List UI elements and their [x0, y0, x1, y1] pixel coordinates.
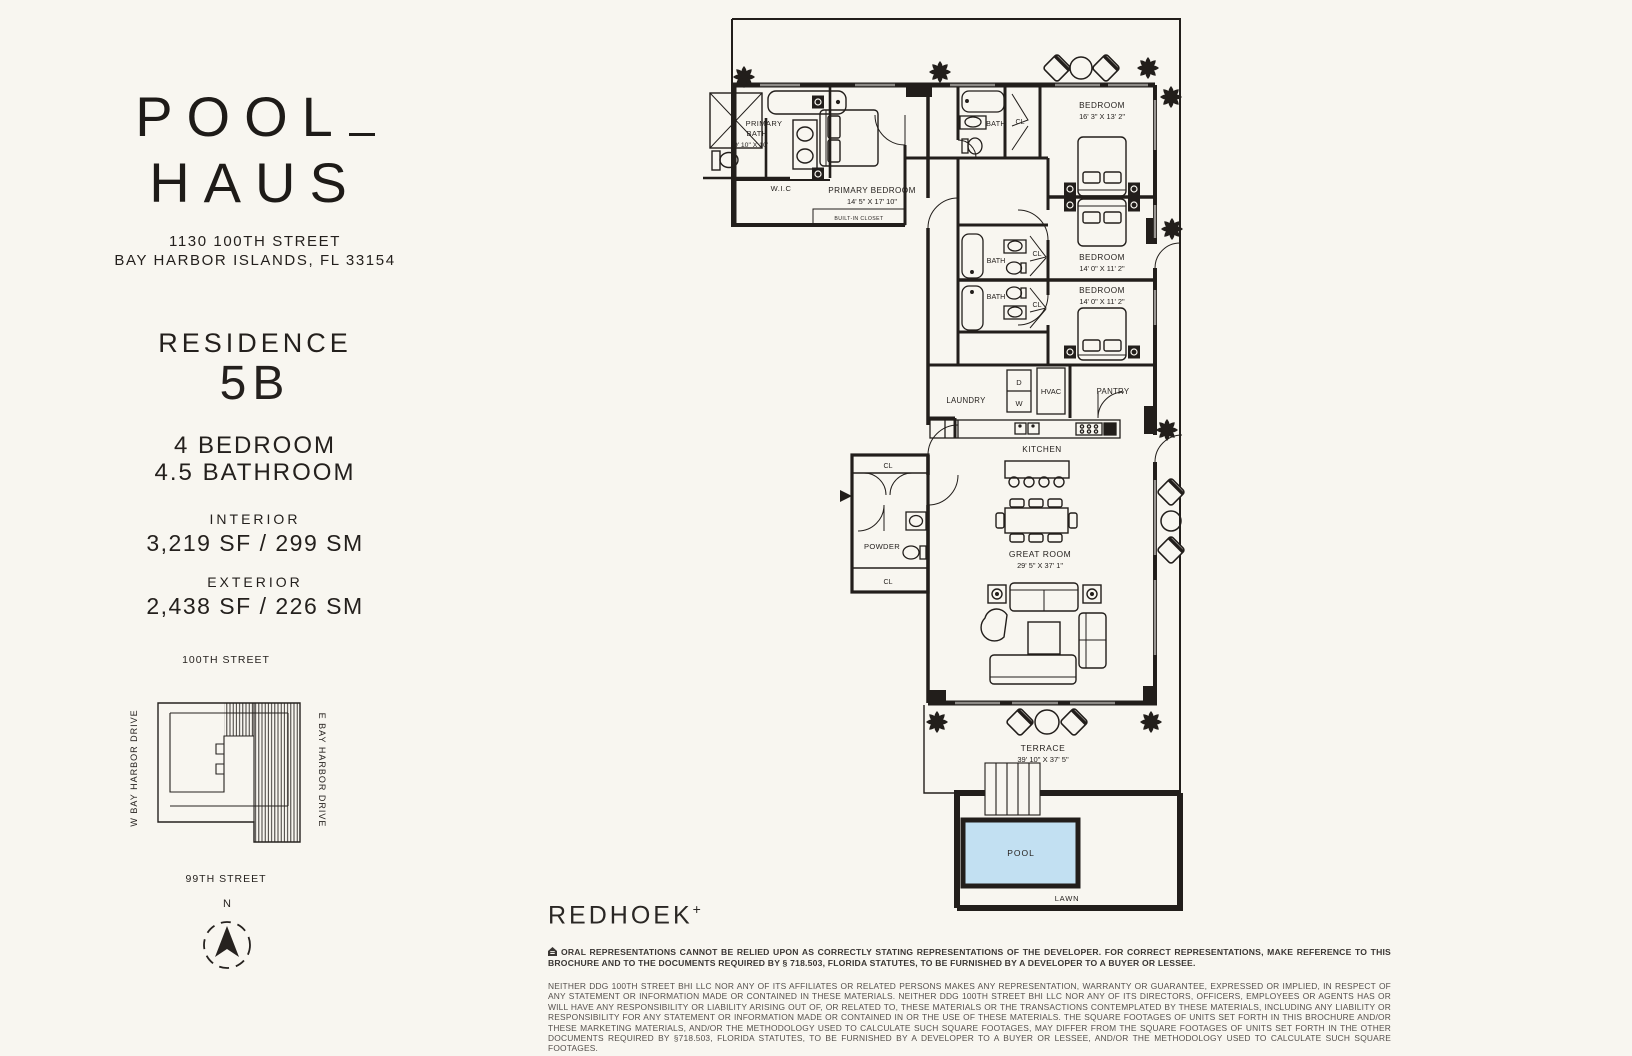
exterior-label: EXTERIOR [100, 574, 410, 590]
powder-cl-label: CL [884, 579, 893, 586]
lawn-label: LAWN [1055, 894, 1080, 903]
laundry-label: LAUNDRY [946, 396, 986, 405]
powder-sink [906, 512, 926, 530]
street-top-label: 100TH STREET [182, 654, 270, 666]
building-address: 1130 100TH STREET BAY HARBOR ISLANDS, FL… [100, 232, 410, 270]
bedroom1-dims: 16' 3" X 13' 2" [1079, 112, 1125, 121]
redhoek-logo-text: REDHOEK [548, 901, 693, 929]
dryer-label: D [1016, 378, 1022, 387]
washer-label: W [1015, 399, 1023, 408]
double-vanity [793, 120, 817, 169]
cl2-label: CL [1016, 119, 1025, 126]
primary-bath-label2: BATH [746, 129, 767, 138]
kitchen-sink [1015, 423, 1039, 434]
primary-bedroom-label: PRIMARY BEDROOM [828, 186, 916, 195]
primary-bath-dims: 9' 10" X 10' [734, 142, 768, 149]
brand-logo-line1: POOL [135, 85, 347, 148]
entry-cl-label: CL [884, 463, 893, 470]
street-left-label: W BAY HARBOR DRIVE [129, 709, 139, 826]
disclaimer-primary-text: ORAL REPRESENTATIONS CANNOT BE RELIED UP… [548, 947, 1391, 968]
primary-bath-label1: PRIMARY [746, 119, 783, 128]
redhoek-logo: REDHOEK+ [548, 901, 704, 930]
powder-label: POWDER [864, 542, 900, 551]
pool-steps [985, 763, 1040, 815]
powder-toilet [903, 546, 926, 559]
terrace-label: TERRACE [1021, 743, 1066, 753]
wic-label: W.I.C [771, 184, 792, 193]
bathroom-count: 4.5 BATHROOM [100, 459, 410, 486]
cl3-label: CL [1033, 251, 1042, 258]
bedroom1-label: BEDROOM [1079, 101, 1125, 110]
redhoek-plus: + [693, 901, 704, 917]
primary-bedroom [820, 110, 878, 166]
toilet [1007, 287, 1027, 299]
disclaimer-secondary: NEITHER DDG 100TH STREET BHI LLC NOR ANY… [548, 981, 1391, 1054]
bed1 [1078, 137, 1126, 196]
bedroom2-label: BEDROOM [1079, 253, 1125, 262]
living-set [981, 583, 1106, 684]
great-room-dims: 29' 5" X 37' 1" [1017, 561, 1063, 570]
dining-set [996, 499, 1077, 542]
cl4-label: CL [1033, 302, 1042, 309]
bath4-label: BATH [987, 292, 1006, 301]
exterior-stats: EXTERIOR 2,438 SF / 226 SM [100, 574, 410, 620]
brand-logo-line2: HAUS [100, 150, 410, 216]
terrace-dims: 39' 10" X 37' 5" [1017, 755, 1069, 764]
brand-logo: POOL HAUS [100, 84, 410, 216]
entry-powder [852, 455, 928, 592]
address-line2: BAY HARBOR ISLANDS, FL 33154 [100, 251, 410, 270]
bed2 [1078, 199, 1126, 246]
compass: N [182, 893, 272, 989]
residence-label: RESIDENCE [100, 328, 410, 359]
built-in-closet-label: BUILT-IN CLOSET [834, 216, 884, 222]
hvac-label: HVAC [1041, 387, 1062, 396]
residence-unit: 5B [100, 356, 410, 411]
bedroom2-dims: 14' 0" X 11' 2" [1079, 264, 1125, 273]
bedroom3-dims: 14' 0" X 11' 2" [1079, 297, 1125, 306]
building-footprint [158, 703, 300, 842]
bed3 [1078, 308, 1126, 360]
entry-arrow-icon [840, 490, 852, 502]
pantry-label: PANTRY [1097, 387, 1130, 396]
kitchen-counter [930, 420, 1120, 438]
bath3-label: BATH [987, 256, 1006, 265]
floor-plan: POOL LAWN [690, 10, 1190, 915]
street-bottom-label: 99TH STREET [185, 873, 266, 885]
bath2-label: BATH [986, 119, 1006, 128]
toilet [1007, 262, 1027, 274]
great-room-label: GREAT ROOM [1009, 549, 1071, 559]
logo-dash [349, 133, 375, 136]
location-key-map: 100TH STREET 99TH STREET W BAY HARBOR DR… [104, 646, 348, 896]
terrace-boundary [732, 19, 1180, 793]
primary-bedroom-dims: 14' 5" X 17' 10" [847, 197, 897, 206]
cooktop [1076, 423, 1116, 435]
disclaimer-primary: ORAL REPRESENTATIONS CANNOT BE RELIED UP… [548, 946, 1391, 968]
interior-label: INTERIOR [100, 511, 410, 527]
bed-bath-count: 4 BEDROOM 4.5 BATHROOM [100, 432, 410, 486]
compass-needle-icon [215, 926, 239, 957]
unit-walls [703, 85, 1157, 705]
equal-housing-icon [548, 947, 557, 959]
exterior-area: 2,438 SF / 226 SM [100, 593, 410, 620]
compass-north-label: N [223, 898, 231, 910]
bedroom3-label: BEDROOM [1079, 286, 1125, 295]
street-right-label: E BAY HARBOR DRIVE [317, 713, 327, 828]
pool-label: POOL [1007, 848, 1035, 858]
kitchen-label: KITCHEN [1022, 445, 1061, 454]
kitchen-island [1005, 461, 1069, 487]
pool-deck [957, 763, 1180, 908]
interior-area: 3,219 SF / 299 SM [100, 530, 410, 557]
address-line1: 1130 100TH STREET [100, 232, 410, 251]
bedroom-count: 4 BEDROOM [100, 432, 410, 459]
interior-stats: INTERIOR 3,219 SF / 299 SM [100, 511, 410, 557]
